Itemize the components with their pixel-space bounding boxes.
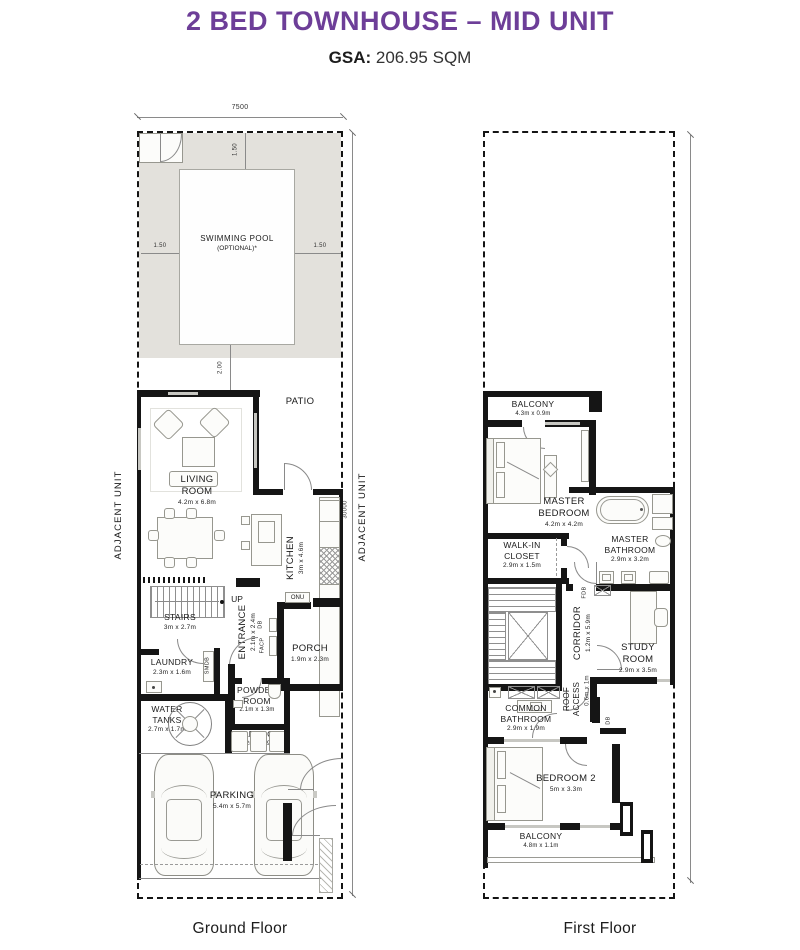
stair-arrow bbox=[155, 601, 219, 602]
window bbox=[168, 392, 198, 395]
coffee-table bbox=[182, 437, 215, 467]
dining-table bbox=[157, 517, 213, 559]
corridor-dims: 1.2m x 5.9m bbox=[585, 596, 592, 670]
roof-access-name: ROOF ACCESS bbox=[562, 680, 582, 718]
rear-window bbox=[161, 848, 207, 859]
window bbox=[504, 739, 560, 742]
laundry-label: LAUNDRY 2.3m x 1.6m bbox=[143, 657, 201, 676]
living-room-label: LIVING ROOM 4.2m x 6.8m bbox=[171, 474, 223, 506]
dim-line bbox=[352, 133, 353, 896]
master-bathroom-name: MASTER BATHROOM bbox=[590, 534, 670, 555]
gsa-label: GSA: bbox=[329, 48, 372, 67]
kitchen-sink bbox=[258, 521, 275, 543]
parking-bay-line bbox=[140, 864, 318, 865]
facp-panel bbox=[269, 636, 277, 656]
walk-in-closet-dims: 2.9m x 1.5m bbox=[489, 562, 555, 569]
pool-dim-bottom: 2.00 bbox=[218, 353, 227, 383]
bed-headboard bbox=[486, 438, 494, 504]
plot-width-dim: 7500 bbox=[135, 104, 345, 111]
dim-line bbox=[690, 135, 691, 883]
door-leaf bbox=[288, 789, 314, 790]
porch-name: PORCH bbox=[281, 643, 339, 655]
gsa-line: GSA: 206.95 SQM bbox=[0, 48, 800, 68]
master-bedroom-label: MASTER BEDROOM 4.2m x 4.2m bbox=[529, 496, 599, 528]
wardrobe bbox=[581, 430, 589, 482]
wall bbox=[592, 697, 600, 723]
garbage-bin bbox=[250, 731, 267, 752]
pool-dim-top: 1.50 bbox=[233, 135, 242, 165]
stairs-treads bbox=[488, 587, 556, 612]
wall bbox=[483, 823, 505, 830]
laundry-name: LAUNDRY bbox=[143, 657, 201, 668]
porch-label: PORCH 1.9m x 2.3m bbox=[281, 643, 339, 663]
common-bathroom-label: COMMON BATHROOM 2.9m x 1.9m bbox=[489, 703, 563, 732]
pillow bbox=[497, 785, 506, 813]
study-room-name: STUDY ROOM bbox=[606, 642, 670, 666]
parking-label: PARKING 5.4m x 5.7m bbox=[200, 790, 264, 810]
dining-chair bbox=[164, 557, 175, 568]
balcony-bottom-name: BALCONY bbox=[505, 831, 577, 842]
stairs-dims: 3m x 2.7m bbox=[154, 624, 206, 631]
pool-dim-left: 1.50 bbox=[146, 243, 174, 249]
bed-headboard bbox=[486, 747, 495, 821]
dryer bbox=[537, 686, 560, 699]
column-core bbox=[623, 806, 630, 832]
stair-rail bbox=[143, 577, 207, 583]
stair-up-dot bbox=[220, 600, 224, 604]
toilet bbox=[268, 684, 281, 699]
adjacent-unit-right-label: ADJACENT UNIT bbox=[357, 462, 371, 572]
walk-in-closet-name: WALK-IN CLOSET bbox=[489, 540, 555, 561]
balcony-top-label: BALCONY 4.3m x 0.9m bbox=[497, 399, 569, 417]
corridor-name: CORRIDOR bbox=[572, 596, 584, 670]
parking-dims: 5.4m x 5.7m bbox=[200, 803, 264, 810]
closet-rod bbox=[556, 538, 557, 576]
fixture-dot bbox=[493, 690, 496, 693]
window bbox=[545, 422, 580, 425]
stool bbox=[241, 516, 250, 525]
db-panel bbox=[269, 618, 277, 632]
wall bbox=[569, 487, 675, 493]
wall bbox=[277, 602, 311, 609]
mirror bbox=[313, 791, 317, 798]
window bbox=[657, 679, 670, 682]
living-room-dims: 4.2m x 6.8m bbox=[171, 499, 223, 506]
stool bbox=[241, 541, 250, 550]
corridor-label: CORRIDOR 1.2m x 5.9m bbox=[572, 596, 592, 670]
wall bbox=[284, 730, 290, 754]
wall bbox=[560, 737, 587, 744]
wall bbox=[139, 390, 260, 397]
window bbox=[505, 825, 560, 828]
wall bbox=[487, 391, 591, 397]
door-opening bbox=[522, 420, 545, 427]
dining-chair bbox=[186, 508, 197, 519]
master-bathroom-dims: 2.9m x 3.2m bbox=[590, 556, 670, 563]
gsa-value: 206.95 SQM bbox=[376, 48, 471, 67]
wall bbox=[593, 677, 657, 684]
sink-basin bbox=[624, 574, 633, 581]
roof-access-label: ROOF ACCESS bbox=[562, 680, 582, 718]
wall bbox=[589, 420, 596, 495]
pool-name: SWIMMING POOL bbox=[179, 234, 295, 243]
balcony-edge bbox=[487, 857, 655, 863]
page-title: 2 BED TOWNHOUSE – MID UNIT bbox=[0, 6, 800, 37]
balcony-top-dims: 4.3m x 0.9m bbox=[497, 411, 569, 417]
sink bbox=[233, 700, 243, 708]
study-room-label: STUDY ROOM 2.9m x 3.5m bbox=[606, 642, 670, 674]
wall bbox=[139, 649, 159, 655]
bed bbox=[486, 438, 541, 504]
wall bbox=[283, 803, 292, 861]
facp-label: FACP bbox=[260, 631, 269, 661]
patio-label: PATIO bbox=[270, 396, 330, 408]
dim-line bbox=[295, 253, 341, 254]
wall bbox=[236, 578, 260, 587]
dining-chair bbox=[214, 530, 225, 541]
balcony-top-name: BALCONY bbox=[497, 399, 569, 410]
wall bbox=[612, 744, 620, 803]
adjacent-unit-left-label: ADJACENT UNIT bbox=[113, 460, 127, 570]
pillow bbox=[496, 442, 505, 468]
common-bathroom-dims: 2.9m x 1.9m bbox=[489, 725, 563, 732]
dim-line bbox=[245, 133, 246, 169]
washer bbox=[508, 686, 535, 699]
mirror bbox=[151, 791, 155, 798]
window bbox=[254, 413, 257, 468]
powder-room-dims: 2.1m x 1.3m bbox=[229, 707, 285, 713]
bathtub-inner bbox=[600, 499, 645, 521]
desk-chair bbox=[654, 608, 668, 627]
pillow bbox=[497, 751, 506, 779]
porch-dims: 1.9m x 2.3m bbox=[281, 656, 339, 663]
stairs-label: STAIRS 3m x 2.7m bbox=[154, 612, 206, 631]
pool-note: (OPTIONAL)* bbox=[179, 245, 295, 252]
master-bathroom-label: MASTER BATHROOM 2.9m x 3.2m bbox=[590, 534, 670, 563]
onu-box: ONU bbox=[285, 592, 310, 603]
laundry-dims: 2.3m x 1.6m bbox=[143, 669, 201, 676]
bathroom-cabinet bbox=[652, 494, 673, 514]
wall bbox=[560, 823, 580, 830]
window bbox=[580, 825, 610, 828]
stairs-name: STAIRS bbox=[154, 612, 206, 623]
faucet bbox=[640, 508, 643, 511]
fixture-dot bbox=[152, 686, 155, 689]
living-room-name: LIVING ROOM bbox=[171, 474, 223, 498]
column-core bbox=[644, 834, 650, 859]
stair-landing bbox=[508, 612, 548, 660]
balcony-bottom-label: BALCONY 4.8m x 1.1m bbox=[505, 831, 577, 849]
dim-line bbox=[141, 253, 179, 254]
swimming-pool bbox=[179, 169, 295, 345]
floorplan-page: 2 BED TOWNHOUSE – MID UNIT GSA: 206.95 S… bbox=[0, 0, 800, 950]
wall bbox=[589, 391, 602, 412]
car-roof bbox=[166, 799, 202, 841]
wall bbox=[483, 737, 504, 744]
kitchen-name: KITCHEN bbox=[285, 523, 297, 593]
tank-center bbox=[182, 716, 198, 732]
dim-line bbox=[137, 117, 343, 118]
bedroom-2-label: BEDROOM 2 5m x 3.3m bbox=[526, 773, 606, 793]
kitchen-appliance bbox=[319, 547, 340, 585]
fdb-box bbox=[594, 585, 611, 596]
wall bbox=[139, 694, 232, 701]
onu-label: ONU bbox=[286, 593, 309, 603]
pool-label: SWIMMING POOL (OPTIONAL)* bbox=[179, 234, 295, 252]
ramp-strip bbox=[319, 838, 333, 893]
study-room-dims: 2.9m x 3.5m bbox=[606, 667, 670, 674]
bathroom-mirror bbox=[652, 517, 673, 530]
kitchen-appliance bbox=[319, 500, 340, 522]
door-leaf bbox=[596, 562, 597, 584]
master-bedroom-name: MASTER BEDROOM bbox=[529, 496, 599, 520]
dim-line bbox=[230, 345, 231, 392]
dining-chair bbox=[148, 530, 159, 541]
first-floor-caption: First Floor bbox=[510, 920, 690, 938]
wall bbox=[214, 648, 220, 698]
kitchen-dims: 3m x 4.6m bbox=[298, 523, 305, 593]
common-bathroom-name: COMMON BATHROOM bbox=[489, 703, 563, 724]
car bbox=[154, 754, 214, 876]
sink-basin bbox=[602, 574, 611, 581]
stairs-treads bbox=[488, 612, 506, 660]
balcony-bottom-dims: 4.8m x 1.1m bbox=[505, 843, 577, 849]
door-leaf bbox=[292, 835, 320, 836]
smdb-label: SMDB bbox=[205, 651, 214, 681]
thin-line bbox=[139, 878, 321, 879]
parking-name: PARKING bbox=[200, 790, 264, 802]
pillow bbox=[496, 472, 505, 498]
wall bbox=[228, 678, 242, 684]
wall bbox=[556, 584, 562, 690]
window bbox=[138, 428, 141, 470]
desk bbox=[630, 591, 657, 644]
wall bbox=[610, 823, 620, 830]
dining-chair bbox=[186, 557, 197, 568]
kitchen-label: KITCHEN 3m x 4.6m bbox=[285, 523, 305, 593]
bedroom-2-dims: 5m x 3.3m bbox=[526, 786, 606, 793]
toilet bbox=[649, 571, 669, 584]
walk-in-closet-label: WALK-IN CLOSET 2.9m x 1.5m bbox=[489, 540, 555, 569]
pool-dim-right: 1.50 bbox=[306, 243, 334, 249]
master-bedroom-dims: 4.2m x 4.2m bbox=[529, 521, 599, 528]
db-label-ff: DB bbox=[606, 711, 615, 731]
wall bbox=[313, 598, 343, 607]
garbage-bin bbox=[231, 731, 248, 752]
ground-floor-caption: Ground Floor bbox=[150, 920, 330, 938]
plot-height-dim: 30000 bbox=[343, 488, 352, 532]
bedroom-2-name: BEDROOM 2 bbox=[526, 773, 606, 785]
dining-chair bbox=[164, 508, 175, 519]
patio-name: PATIO bbox=[270, 396, 330, 408]
